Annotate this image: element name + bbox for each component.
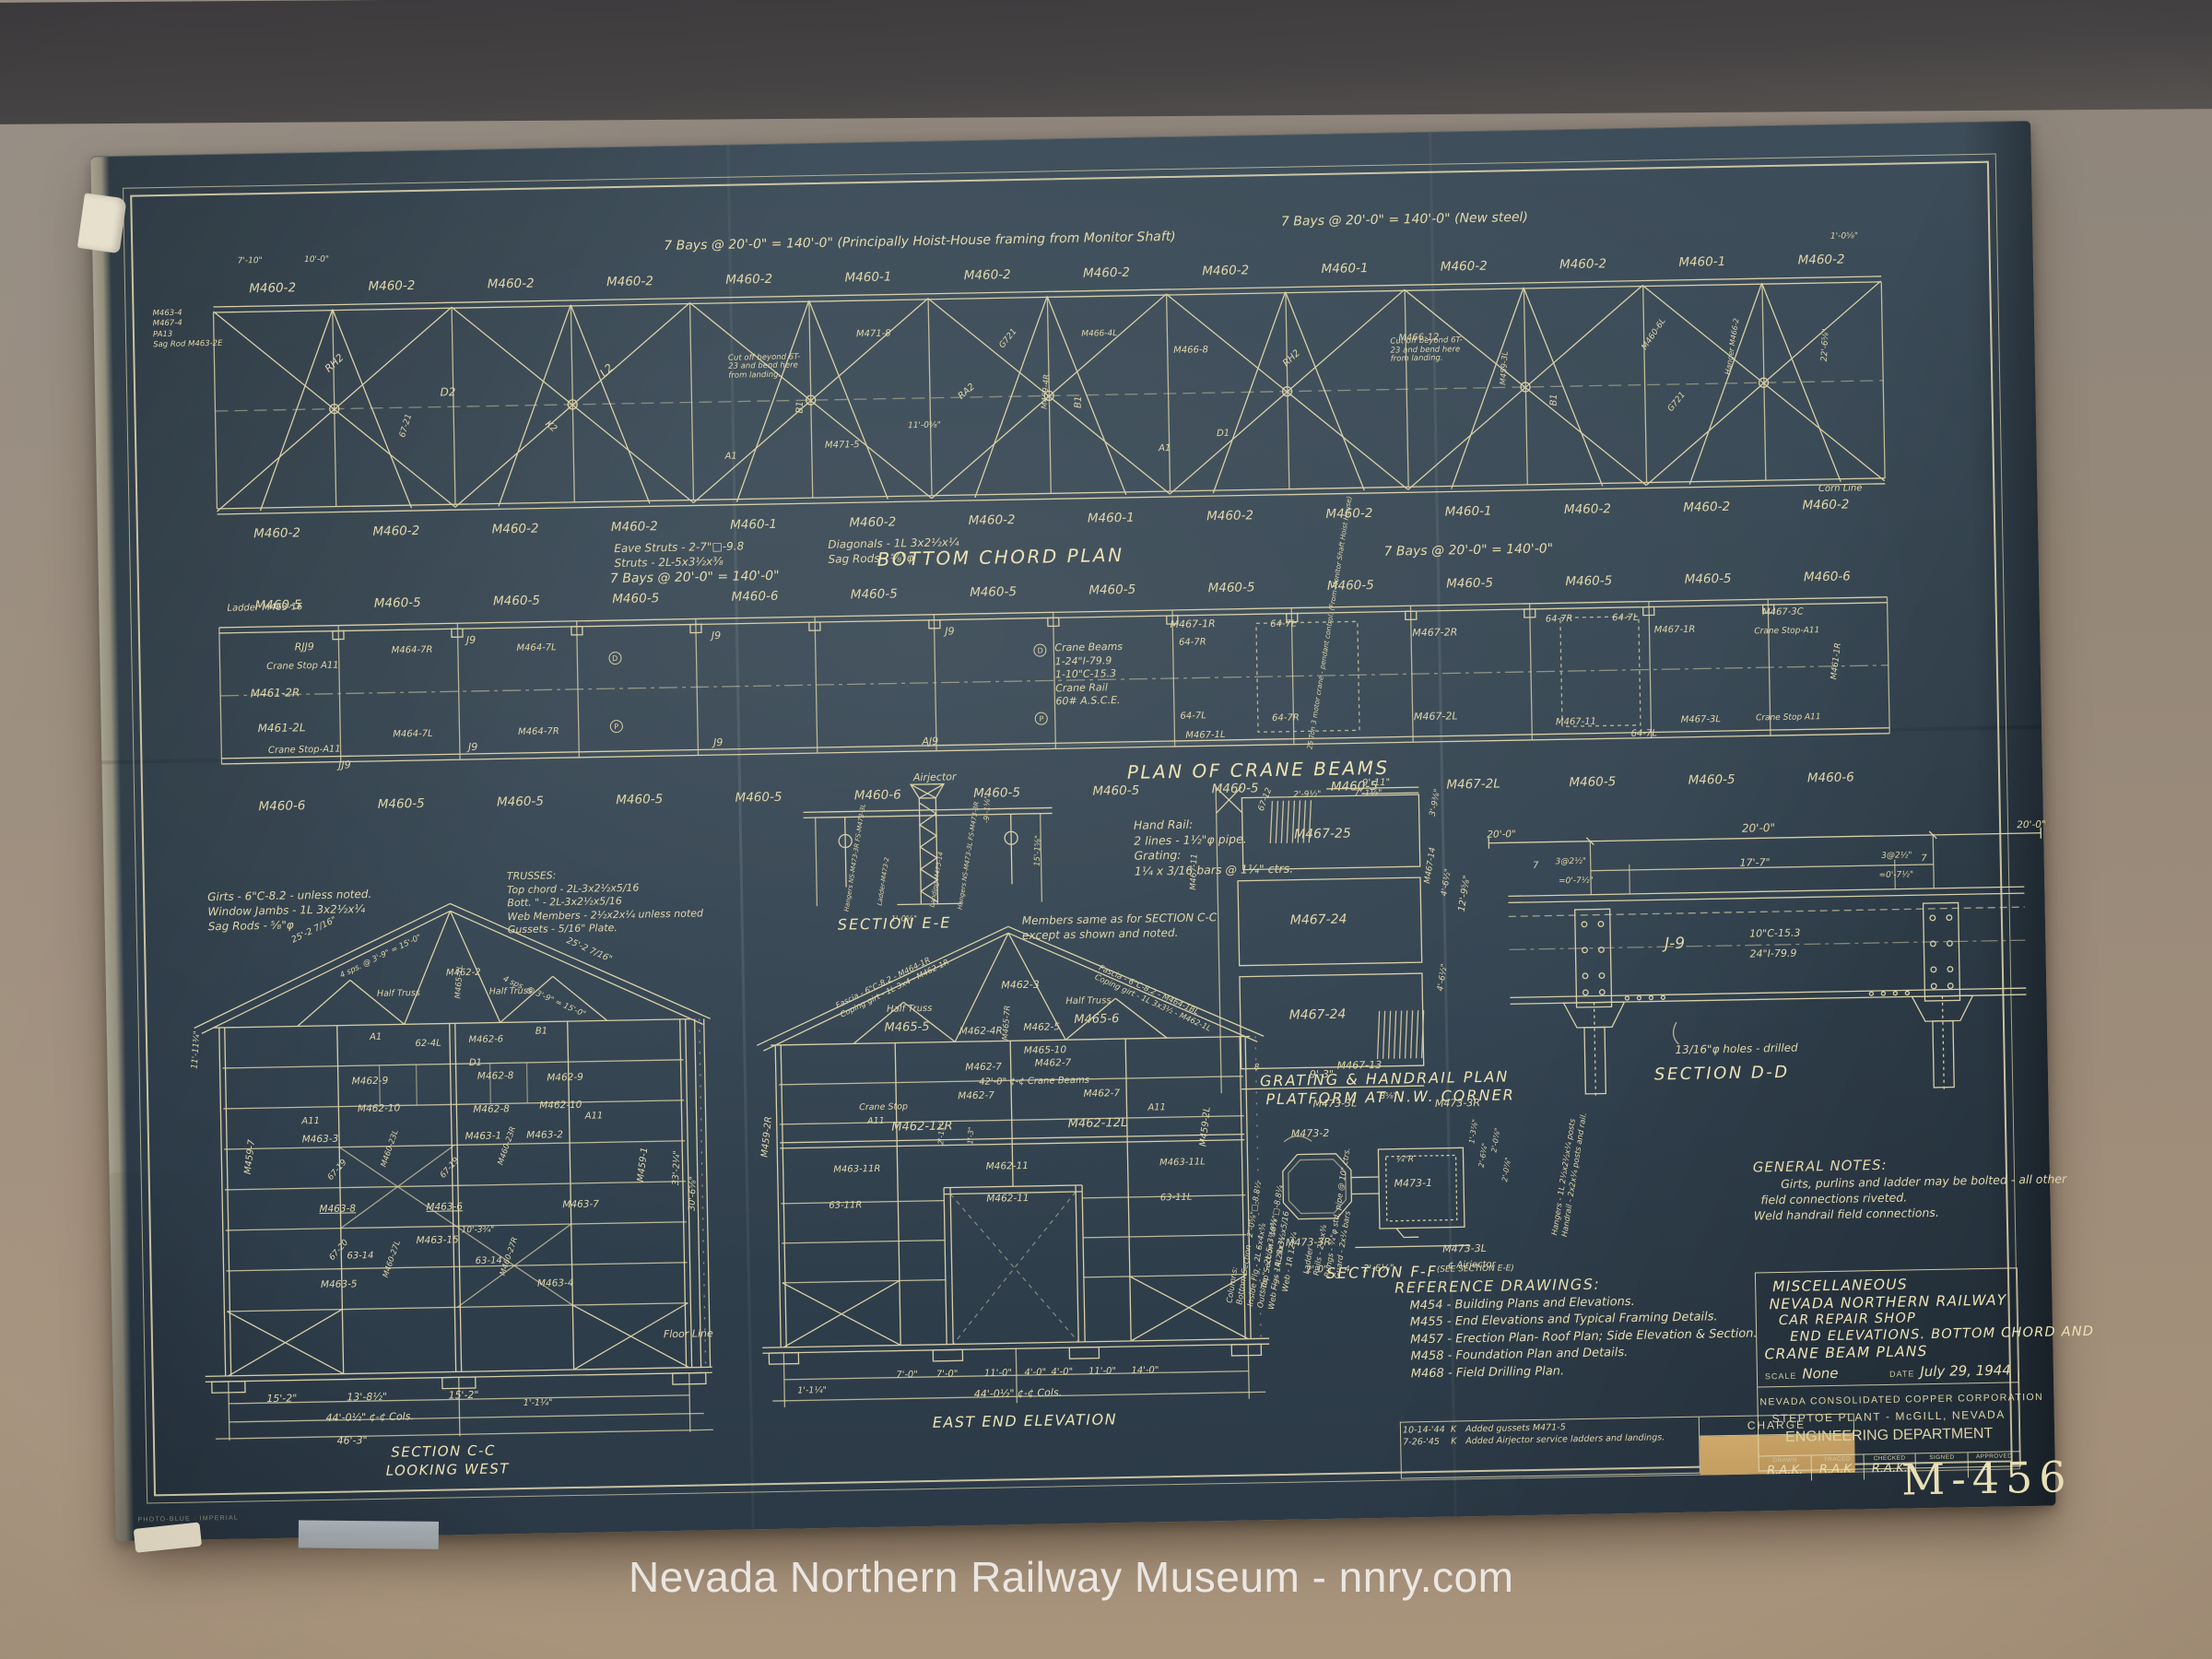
east-end-elevation-title: EAST END ELEVATION [933, 1410, 1118, 1431]
drawing-label: M467-11 [1190, 853, 1200, 890]
member-label: M460-2 [1171, 508, 1290, 524]
east-end-elevation-drawing: M462-3Half TrussM465-5Half TrussM465-6M4… [741, 905, 1284, 1381]
member-label: M460-1 [1642, 253, 1762, 270]
note-line: Crane Rail [1055, 681, 1124, 696]
drawing-label: Half Truss [887, 1005, 933, 1016]
drawing-label: 17'-7" [1739, 858, 1770, 869]
reference-drawings: REFERENCE DRAWINGS: M454 - Building Plan… [1394, 1273, 1759, 1383]
member-label: M460-5 [1648, 571, 1768, 587]
member-label: M460-5 [815, 586, 935, 603]
drawing-label: 20'-0" [2017, 820, 2046, 831]
drawing-label: M462-7 [965, 1063, 1002, 1074]
signature-value: R.A.K. [1811, 1462, 1863, 1477]
drawing-label: M462-10 [358, 1104, 400, 1115]
drawing-label: 4'-0" [1051, 1368, 1073, 1378]
title-block: MISCELLANEOUSNEVADA NORTHERN RAILWAYCAR … [1755, 1267, 2021, 1471]
drawing-label: M463-5 [321, 1279, 358, 1290]
drawing-label: P [1035, 712, 1048, 724]
member-label: M460-2 [1647, 499, 1767, 515]
drawing-label: 7'-0" [896, 1371, 918, 1381]
section-cc-drawing: M462-2M465-7LHalf TrussHalf Truss25'-2 7… [182, 878, 726, 1391]
bay-note-right-2: 7 Bays @ 20'-0" = 140'-0" [1383, 541, 1553, 559]
drawing-label: 13/16"φ holes - drilled [1675, 1042, 1797, 1056]
section-cc-title: SECTION C-C [391, 1442, 496, 1461]
drawing-label: M467-2L [1414, 711, 1458, 723]
member-label: M460-6 [1771, 770, 1891, 786]
drawing-label: AJ9 [922, 736, 938, 747]
drawing-label: A1 [724, 452, 736, 462]
member-label: M460-5 [1652, 771, 1771, 788]
drawing-label: M471-8 [856, 330, 891, 340]
general-notes-lines: Girts, purlins and ladder may be bolted … [1753, 1171, 2067, 1224]
drawing-label: M462-8 [473, 1104, 510, 1115]
member-label: M460-2 [932, 512, 1052, 528]
member-label: M460-2 [575, 518, 695, 535]
section-dd-title: SECTION D-D [1654, 1063, 1790, 1085]
drawing-label: M462-10 [539, 1100, 582, 1112]
drawing-label: 20'-0" [1742, 822, 1775, 835]
member-label: M460-2 [927, 266, 1047, 283]
bottom-chord-plan-title: BOTTOM CHORD PLAN [877, 544, 1124, 571]
drawing-label: M461-2L [258, 722, 306, 735]
drawing-label: A11 [1147, 1103, 1166, 1113]
revision-rows: 10-14-'44 K Added gussets M471-5 7-26-'4… [1400, 1417, 1700, 1479]
drawing-label: J9 [713, 736, 723, 747]
section-cc-subtitle: LOOKING WEST [385, 1460, 510, 1478]
drawing-label: M467-2R [1412, 627, 1457, 639]
drawing-label: 64-7R [1546, 615, 1573, 625]
member-label: M460-6 [1768, 569, 1888, 585]
drawing-label: 15'-2" [266, 1394, 297, 1405]
drawing-label: M462-11 [986, 1194, 1029, 1205]
drawing-label: M465-5 [884, 1021, 929, 1035]
member-label: M460-5 [1171, 580, 1291, 596]
drawing-label: Crane Stop A11 [1756, 713, 1821, 724]
drawing-label: M473-3L [1442, 1243, 1487, 1255]
drawing-label: M466-12 [1398, 333, 1439, 344]
drawing-label: 64-7L [1631, 729, 1657, 739]
drawing-label: M462-12L [1068, 1117, 1128, 1131]
drawing-label: 62-4L [415, 1040, 441, 1050]
drawing-label: 24"I-79.9 [1750, 948, 1797, 960]
drawing-label: M462-7 [1083, 1088, 1120, 1100]
date-label: DATE [1889, 1369, 1915, 1378]
member-label: M460-5 [576, 590, 696, 606]
drawing-label: 46'-3" [336, 1435, 367, 1446]
drawing-label: D [608, 652, 621, 665]
member-label: M460-5 [1529, 573, 1649, 590]
drawing-label: J9 [712, 630, 721, 641]
bottom-chord-plan-drawing: 7'-10"10'-0"RH2D267-21L2K2A1B1Cut off be… [213, 272, 1885, 524]
drawing-label: 7 [1533, 862, 1539, 872]
drawing-label: M462-11 [986, 1161, 1029, 1172]
member-label: M460-6 [695, 588, 815, 605]
drawing-label: M463-6 [426, 1202, 463, 1213]
member-label: M460-1 [808, 269, 928, 286]
drawing-label: 64-7R [1179, 638, 1206, 648]
scale-value: None [1802, 1365, 1838, 1382]
member-label: M460-5 [337, 594, 457, 611]
drawing-label: M463-1 [465, 1131, 501, 1142]
member-label: M460-2 [1524, 256, 1643, 273]
signature-value: R.A.K. [1759, 1463, 1811, 1477]
drawing-title-line: CRANE BEAM PLANS [1764, 1342, 2010, 1364]
drawing-label: J-9 [1665, 935, 1685, 953]
drawing-label: 44'-0½" ¢-¢ Cols. [325, 1411, 414, 1424]
drawing-label: M463-3 [302, 1134, 339, 1145]
drawing-label: Cut off beyond 6T-23 and bend here from … [728, 353, 809, 380]
drawing-label: 63-11R [829, 1201, 862, 1211]
drawing-label: 10'-0" [304, 256, 329, 265]
eave-struts-note: Eave Struts - 2-7"□-9.8Struts - 2L-5x3½x… [614, 539, 744, 571]
drawing-label: 4'-0" [1024, 1369, 1046, 1379]
ladder-callout-stack: M463-4M467-4PA13Sag Rod M463-2E [152, 308, 222, 351]
drawing-label: Crane Stop-A11 [268, 746, 341, 757]
member-label: M460-5 [1056, 782, 1176, 799]
drawing-label: P [609, 719, 622, 732]
drawing-label: 10"C-15.3 [1749, 928, 1800, 940]
date-value: July 29, 1944 [1920, 1362, 2011, 1381]
drawing-label: M465-10 [1024, 1045, 1066, 1056]
drawing-label: M467-1R [1654, 626, 1696, 637]
drawing-label: M463-4 [537, 1278, 574, 1289]
member-label: M460-1 [1285, 260, 1405, 276]
member-label: M460-1 [694, 516, 814, 533]
member-label: M460-2 [1761, 252, 1881, 268]
note-line: Sag Rod M463-2E [153, 339, 223, 351]
tape-piece [299, 1520, 439, 1548]
drawing-label: 64-7L [1180, 712, 1206, 722]
drawing-label: 3@2½" [1881, 853, 1912, 862]
drawing-label: A11 [585, 1112, 604, 1122]
member-label: M460-5 [580, 791, 700, 807]
member-label: M460-1 [1052, 510, 1171, 526]
member-label: M460-5 [341, 795, 461, 812]
drawing-label: A1 [370, 1033, 382, 1043]
drawing-label: M463-7 [562, 1200, 599, 1211]
drawing-label: 11'-0" [1088, 1367, 1116, 1377]
drawing-label: M462-4R [959, 1027, 1003, 1038]
signature-cell: DRAWN R.A.K. [1759, 1455, 1812, 1481]
drawing-number: M-456 [1901, 1452, 2073, 1504]
drawing-label: ¼"R [1396, 1156, 1414, 1165]
note-line: Eave Struts - 2-7"□-9.8 [614, 539, 744, 556]
drawing-label: 7'-0" [936, 1370, 959, 1380]
blueprint-sheet: 7 Bays @ 20'-0" = 140'-0" (Principally H… [90, 121, 2055, 1541]
drawing-label: B1 [1075, 396, 1085, 408]
drawing-label: M462-5 [1023, 1023, 1060, 1034]
member-label: M460-2 [336, 523, 456, 539]
drawing-label: 9'-11" [1362, 779, 1390, 789]
drawing-label: J9 [945, 626, 954, 637]
drawing-label: 11'-0⅝" [908, 422, 941, 431]
drawing-label: M463-11R [833, 1165, 880, 1176]
floor-line-label: Floor Line [664, 1328, 713, 1340]
member-label: M460-2 [813, 514, 933, 531]
member-label: M460-2 [689, 271, 809, 288]
drawing-label: 64-7L [1270, 620, 1296, 630]
drawing-label: 44'-0½" ¢-¢ Cols. [974, 1387, 1063, 1400]
drawing-label: M465-6 [1074, 1013, 1119, 1027]
bay-note-left-2: 7 Bays @ 20'-0" = 140'-0" [610, 569, 780, 586]
drawing-label: Crane Stop [859, 1102, 908, 1112]
drawing-label: 1'-1¼" [524, 1399, 553, 1409]
member-label: M460-2 [218, 525, 337, 542]
member-label: M460-1 [1408, 503, 1528, 520]
drawing-label: M473-1 [1394, 1178, 1432, 1190]
drawing-label: A1 [1159, 444, 1171, 454]
drawing-label: M467-3L [1681, 715, 1721, 726]
drawing-label: 15'-2" [448, 1390, 478, 1401]
drawing-label: M463-8 [319, 1204, 356, 1215]
drawing-label: JJ9 [338, 759, 351, 771]
drawing-label: M467-24 [1289, 1008, 1347, 1023]
drawing-label: M464-7R [518, 727, 559, 738]
drawing-label: M462-3 [1001, 979, 1040, 991]
drawing-label: 1'-1¼" [797, 1386, 827, 1396]
drawing-label: M462-9 [547, 1073, 583, 1084]
member-label: M460-5 [1410, 575, 1530, 592]
drawing-label: 13'-8½" [347, 1392, 387, 1404]
member-label: M460-2 [1166, 263, 1286, 279]
crane-beams-note: Crane Beams1-24"I-79.91-10"C-15.3Crane R… [1054, 641, 1124, 709]
note-line: Crane Beams [1054, 641, 1123, 655]
member-label: M460-2 [1047, 265, 1167, 281]
drawing-label: =0'-7½" [1878, 871, 1913, 880]
note-line: 1-24"I-79.9 [1055, 653, 1124, 668]
member-label: M460-2 [332, 277, 452, 294]
drawing-label: M462-8 [477, 1071, 514, 1082]
drawing-label: 14'-0" [1131, 1366, 1159, 1376]
drawing-label: J9 [466, 635, 476, 646]
drawing-label: M466-4L [1081, 330, 1117, 339]
drawing-label: M464-7L [516, 643, 556, 654]
museum-watermark: Nevada Northern Railway Museum - nnry.co… [629, 1552, 1513, 1602]
drawing-label: M463-15 [416, 1235, 458, 1246]
drawing-label: M467-1R [1170, 618, 1215, 630]
drawing-label: =0'-7½" [1559, 877, 1594, 887]
drawing-label: 2'-9½" [1293, 791, 1321, 800]
drawing-label: 63-11L [1160, 1193, 1193, 1203]
drawing-label: 30'-6⅝" [688, 1176, 700, 1211]
section-ff-title-note: (SEE SECTION E-E) [1437, 1265, 1514, 1275]
member-label: M460-2 [1528, 501, 1648, 518]
drawing-label: 64-7R [1272, 713, 1300, 724]
drawing-label: D1 [1217, 429, 1230, 440]
drawing-label: 63-14 [476, 1256, 502, 1266]
drawing-label: B1 [535, 1028, 547, 1038]
drawing-label: 22'-6⅝" [1821, 328, 1832, 361]
drawing-label: 42'-0" ¢-¢ Crane Beams [979, 1077, 1089, 1088]
drawing-label: A11 [867, 1117, 885, 1127]
note-line: 60# A.S.C.E. [1055, 694, 1124, 709]
member-label: M460-2 [455, 521, 575, 537]
scale-label: SCALE [1765, 1371, 1797, 1382]
company-lines: NEVADA CONSOLIDATED COPPER CORPORATIONST… [1758, 1382, 2019, 1456]
drawing-label: B1 [1550, 394, 1560, 406]
general-notes: GENERAL NOTES: Girts, purlins and ladder… [1753, 1153, 2067, 1224]
signature-cell: TRACED R.A.K. [1811, 1454, 1864, 1480]
drawing-label: M471-5 [825, 441, 860, 451]
drawing-label: 7 [1921, 854, 1927, 865]
drawing-label: Ladder M463-16 [227, 603, 302, 614]
drawing-title-lines: MISCELLANEOUSNEVADA NORTHERN RAILWAYCAR … [1756, 1268, 2018, 1366]
drawing-label: D1 [469, 1059, 482, 1069]
drawing-label: 33'-2¼" [672, 1151, 683, 1186]
drawing-label: M461-2R [251, 687, 300, 700]
drawing-label: M467-11 [1556, 718, 1596, 729]
member-label: M460-2 [451, 276, 571, 292]
torn-paper-piece [77, 193, 127, 253]
drawing-label: M467-25 [1294, 827, 1351, 841]
member-label: M460-5 [461, 794, 581, 810]
member-label: M460-2 [571, 274, 690, 290]
drawing-label: 15'-1⅝" [1034, 835, 1043, 866]
drawing-label: M467-1L [1185, 731, 1225, 742]
drawing-label: J9 [468, 741, 477, 752]
member-label: M460-2 [213, 280, 333, 297]
member-label: M460-5 [1291, 577, 1411, 594]
drawing-label: 2'-11" [937, 1122, 947, 1145]
member-label: M460-5 [457, 593, 577, 609]
drawing-label: M462-6 [468, 1036, 503, 1046]
drawing-label: D2 [440, 386, 455, 398]
background-wall [0, 0, 2212, 124]
drawing-label: B1 [796, 401, 806, 413]
drawing-label: 20'-0" [1487, 829, 1516, 841]
drawing-label: M464-7R [392, 645, 433, 656]
drawing-label: M463-2 [526, 1130, 563, 1141]
drawing-label: M467-3C [1762, 607, 1804, 618]
member-label: M460-2 [1405, 258, 1524, 275]
drawing-label: 1'-3" [967, 1126, 976, 1145]
note-line: 1-10"C-15.3 [1055, 667, 1124, 682]
drawing-label: 3@2½" [1556, 858, 1587, 867]
drawing-label: M473-2 [1291, 1128, 1330, 1140]
drawing-label: Corn Line [1818, 485, 1863, 496]
drawing-label: M464-7L [393, 729, 432, 740]
company-line: ENGINEERING DEPARTMENT [1760, 1422, 2018, 1449]
drawing-label: Crane Stop A11 [266, 662, 339, 673]
drawing-label: 64-7L [1612, 614, 1638, 624]
drawing-label: Half Truss [1065, 996, 1112, 1007]
section-dd-drawing: 20'-0"20'-0"20'-0"73@2½"=0'-7½"17'-7"3@2… [1481, 820, 2053, 1102]
revision-by: K [1451, 1436, 1465, 1449]
revision-date: 7-26-'45 [1403, 1436, 1451, 1449]
drawing-label: A11 [301, 1117, 320, 1127]
drawing-label: 63-14 [347, 1252, 373, 1262]
drawing-label: M473-3L [1312, 1098, 1357, 1110]
drawing-label: 1'-0⅝" [1830, 232, 1858, 241]
revision-by: K [1451, 1423, 1465, 1436]
member-label: M460-5 [1533, 773, 1653, 790]
drawing-label: 11'-0" [984, 1369, 1012, 1379]
drawing-label: M462-7 [1035, 1058, 1072, 1069]
drawing-label: M462-7 [958, 1091, 994, 1102]
section-ee-drawing: Hangers NS-M473-3R FS-M473-3LLadder-M473… [789, 780, 1068, 923]
revision-date: 10-14-'44 [1403, 1424, 1451, 1437]
drawing-label: M467-24 [1290, 912, 1347, 927]
drawing-label: Crane Stop-A11 [1754, 627, 1819, 637]
member-label: M460-6 [222, 798, 342, 815]
drawing-label: Half Truss [377, 989, 420, 999]
photo-scene: 7 Bays @ 20'-0" = 140'-0" (Principally H… [0, 0, 2212, 1659]
drawing-label: 8⅝" [1380, 1093, 1397, 1102]
drawing-label: 7'-1½" [1354, 790, 1382, 799]
drawing-label: RJJ9 [295, 641, 314, 653]
drawing-label: M473-3R [1435, 1098, 1480, 1110]
drawing-label: 10'-3¾" [462, 1227, 495, 1236]
drawing-label: -9'-1⅝" [983, 795, 993, 823]
member-label: M460-5 [934, 583, 1053, 600]
reference-drawings-list: M454 - Building Plans and Elevations.M45… [1394, 1291, 1758, 1382]
drawing-label: M462-9 [352, 1077, 389, 1088]
drawing-label: M466-8 [1173, 346, 1208, 356]
member-label: M460-5 [1053, 582, 1172, 598]
crane-beam-plan-drawing: Ladder M463-16RJJ9Crane Stop A11M461-2RM… [219, 590, 1890, 782]
drawing-label: 7'-10" [238, 257, 263, 266]
drawing-label: M463-11L [1159, 1158, 1206, 1169]
member-label: M460-2 [1766, 497, 1886, 513]
